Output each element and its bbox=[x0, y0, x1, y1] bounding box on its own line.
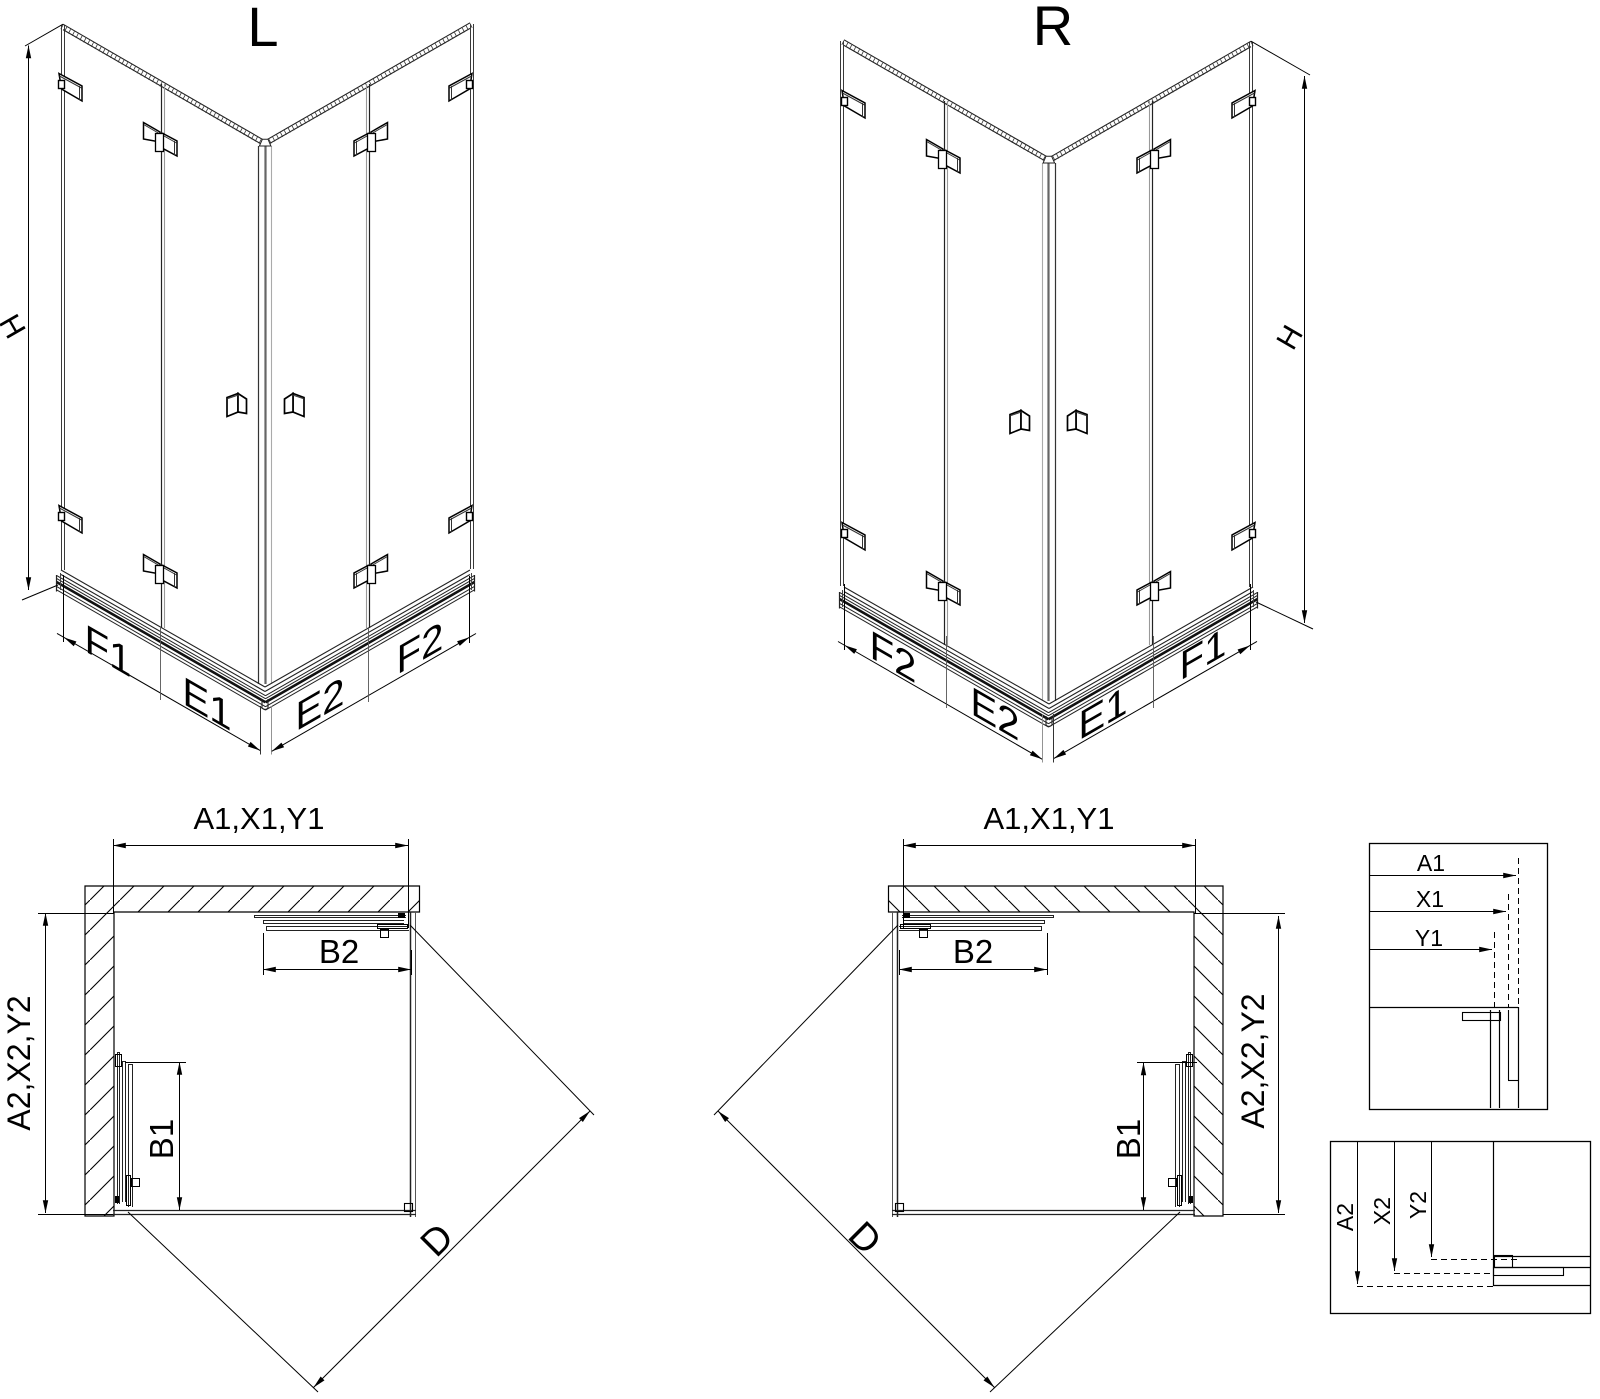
svg-text:A1,X1,Y1: A1,X1,Y1 bbox=[984, 801, 1115, 836]
svg-text:A1,X1,Y1: A1,X1,Y1 bbox=[194, 801, 325, 836]
svg-text:A2,X2,Y2: A2,X2,Y2 bbox=[1235, 993, 1271, 1128]
svg-text:L: L bbox=[247, 0, 278, 58]
svg-text:Y2: Y2 bbox=[1405, 1191, 1431, 1219]
svg-text:A2: A2 bbox=[1332, 1203, 1358, 1231]
svg-text:A2,X2,Y2: A2,X2,Y2 bbox=[1, 995, 37, 1130]
svg-text:B1: B1 bbox=[143, 1119, 180, 1159]
svg-text:B1: B1 bbox=[1110, 1119, 1147, 1159]
svg-text:B2: B2 bbox=[319, 933, 359, 970]
svg-text:A1: A1 bbox=[1417, 850, 1445, 876]
svg-text:X1: X1 bbox=[1416, 886, 1444, 912]
svg-text:R: R bbox=[1033, 0, 1073, 57]
svg-text:Y1: Y1 bbox=[1415, 925, 1443, 951]
svg-text:B2: B2 bbox=[953, 933, 993, 970]
svg-text:X2: X2 bbox=[1369, 1197, 1395, 1225]
